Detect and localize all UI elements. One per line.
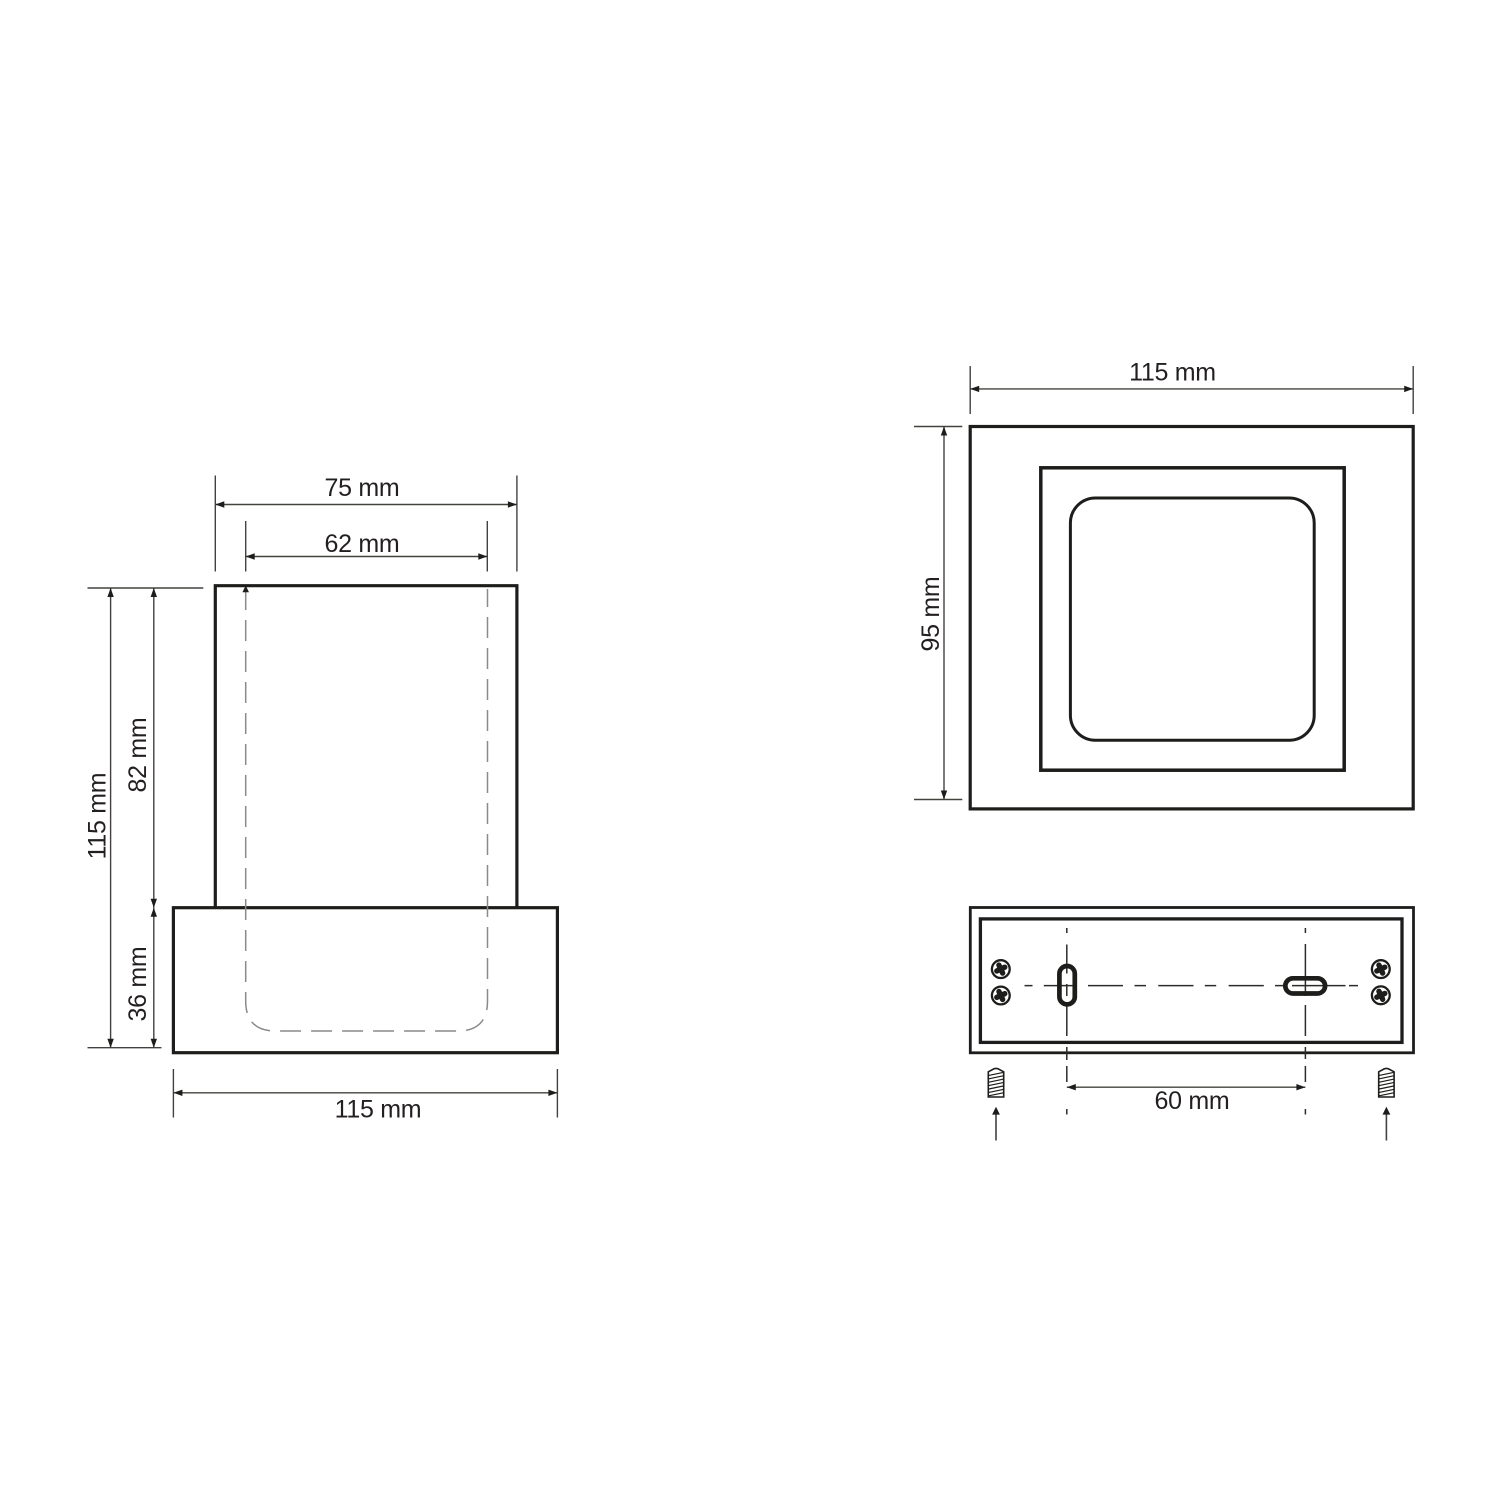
svg-text:115 mm: 115 mm	[1129, 359, 1216, 387]
svg-text:62 mm: 62 mm	[325, 530, 400, 558]
svg-text:36 mm: 36 mm	[124, 947, 152, 1022]
svg-text:60 mm: 60 mm	[1155, 1087, 1230, 1115]
svg-text:115 mm: 115 mm	[84, 773, 112, 860]
svg-text:115 mm: 115 mm	[335, 1095, 422, 1123]
svg-text:75 mm: 75 mm	[325, 474, 400, 502]
svg-text:95 mm: 95 mm	[917, 577, 945, 652]
svg-text:82 mm: 82 mm	[124, 718, 152, 793]
